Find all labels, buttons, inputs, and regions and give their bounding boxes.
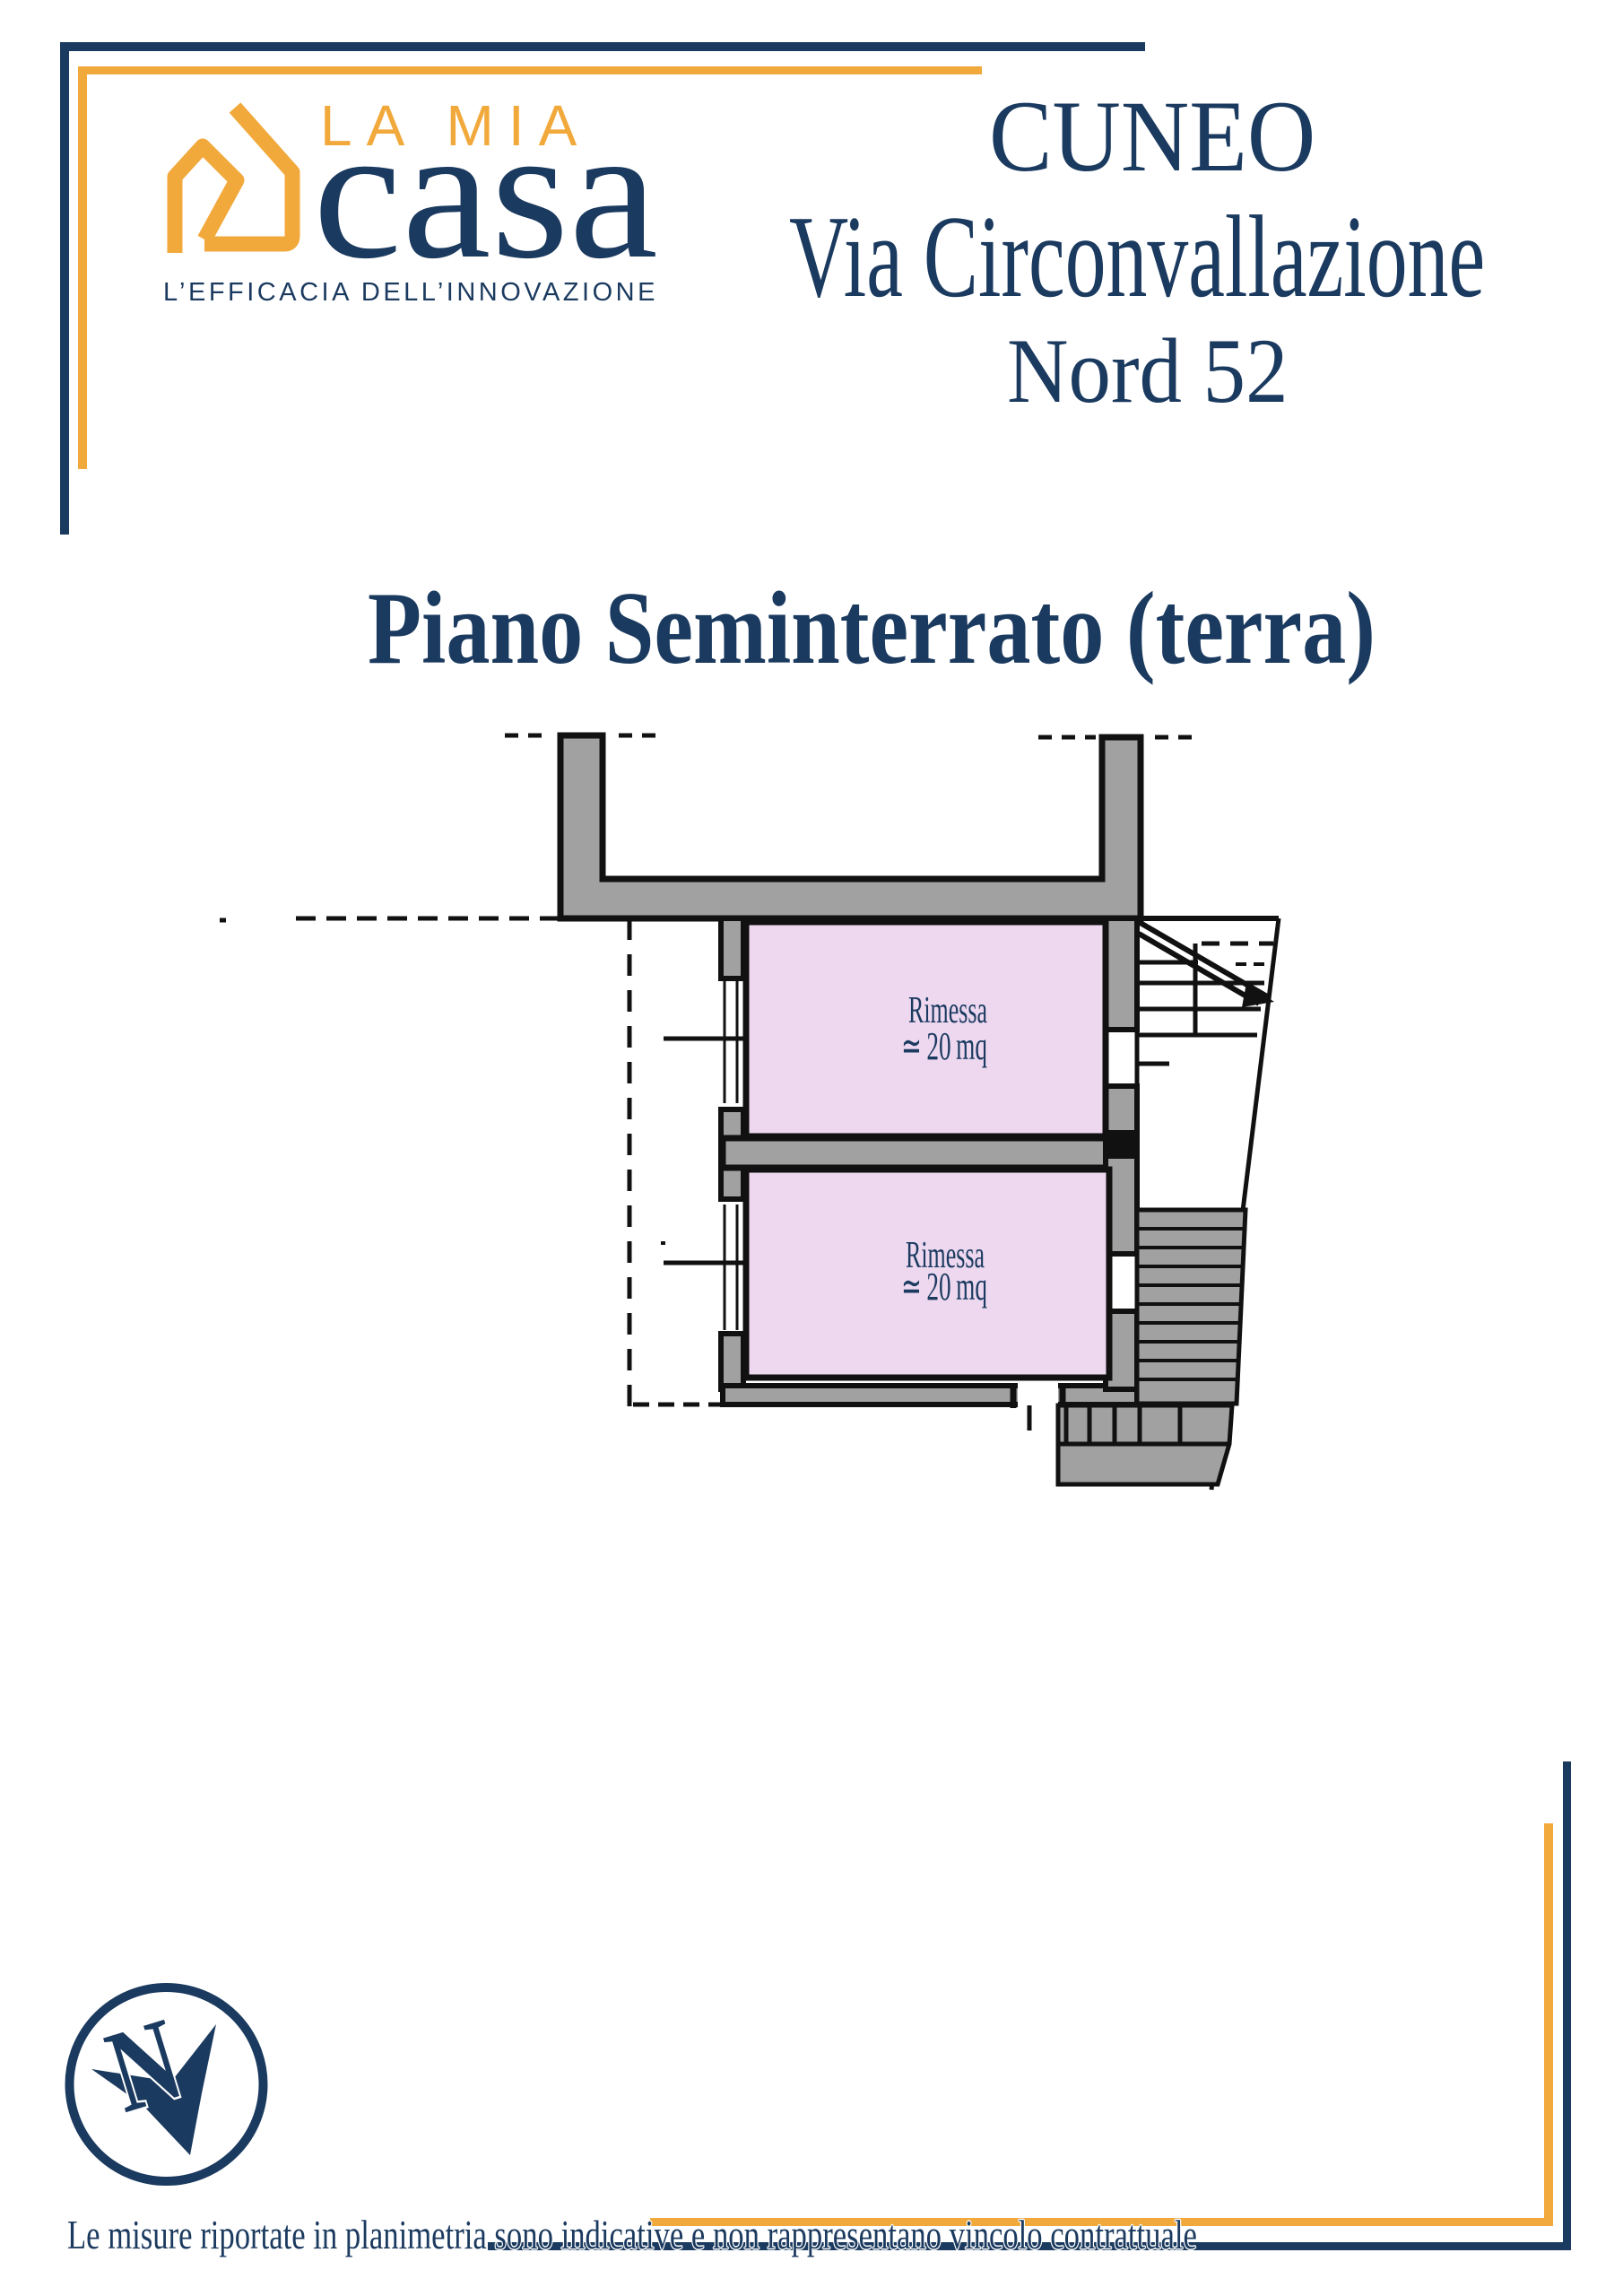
svg-text:N: N — [93, 1993, 195, 2137]
svg-text:≃ 20 mq: ≃ 20 mq — [901, 1265, 987, 1309]
svg-text:≃ 20 mq: ≃ 20 mq — [901, 1024, 987, 1068]
